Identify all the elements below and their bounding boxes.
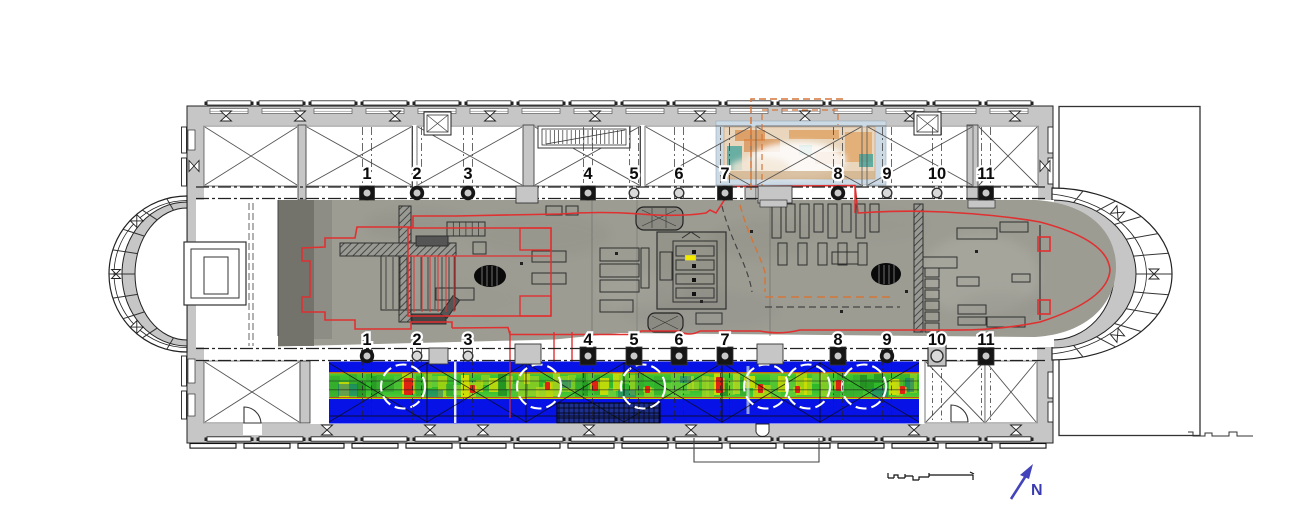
svg-text:3: 3 [463, 331, 472, 349]
svg-text:4: 4 [583, 331, 593, 349]
svg-text:4: 4 [583, 165, 593, 183]
svg-text:7: 7 [720, 331, 729, 349]
svg-text:10: 10 [928, 331, 946, 349]
svg-text:5: 5 [629, 331, 638, 349]
svg-text:7: 7 [720, 165, 729, 183]
svg-text:8: 8 [833, 165, 842, 183]
svg-text:1: 1 [362, 331, 371, 349]
svg-text:N: N [1031, 482, 1043, 499]
svg-text:6: 6 [674, 165, 683, 183]
svg-text:11: 11 [977, 165, 994, 183]
svg-text:2: 2 [412, 165, 421, 183]
svg-text:1: 1 [362, 165, 371, 183]
svg-text:10: 10 [928, 165, 946, 183]
svg-text:9: 9 [882, 165, 891, 183]
svg-text:6: 6 [674, 331, 683, 349]
svg-text:11: 11 [977, 331, 994, 349]
svg-text:2: 2 [412, 331, 421, 349]
svg-text:8: 8 [833, 331, 842, 349]
svg-text:5: 5 [629, 165, 638, 183]
svg-text:9: 9 [882, 331, 891, 349]
svg-text:3: 3 [463, 165, 472, 183]
